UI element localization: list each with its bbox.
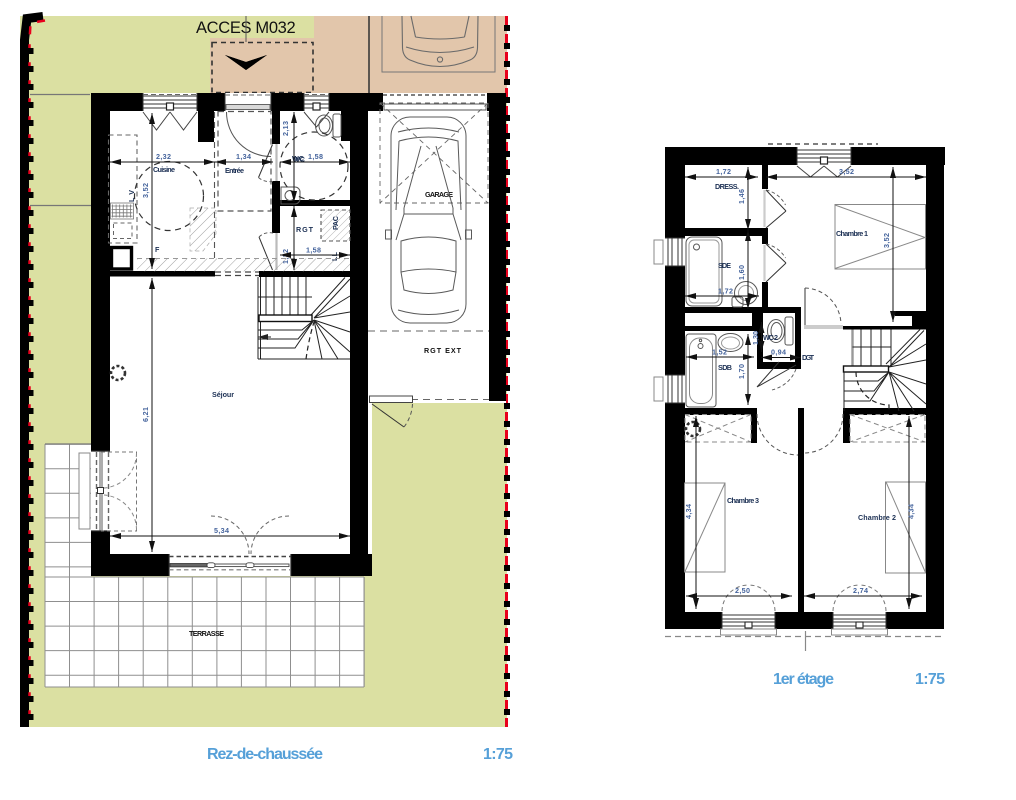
svg-text:RGT: RGT <box>296 225 314 234</box>
svg-text:Rez-de-chaussée: Rez-de-chaussée <box>207 746 323 763</box>
svg-text:1,60: 1,60 <box>737 265 746 280</box>
svg-text:0,94: 0,94 <box>771 348 786 357</box>
svg-text:WC 2: WC 2 <box>763 333 778 342</box>
svg-text:RGT EXT: RGT EXT <box>424 346 462 355</box>
svg-text:4,34: 4,34 <box>684 504 693 519</box>
svg-text:1,58: 1,58 <box>308 152 323 161</box>
svg-text:1,32: 1,32 <box>281 249 290 264</box>
svg-text:3,52: 3,52 <box>141 183 150 198</box>
svg-text:4,34: 4,34 <box>907 504 916 519</box>
svg-text:2,13: 2,13 <box>281 121 290 136</box>
svg-text:DGT: DGT <box>802 353 815 362</box>
svg-text:5,34: 5,34 <box>214 526 229 535</box>
svg-text:1,70: 1,70 <box>737 364 746 379</box>
svg-text:1:75: 1:75 <box>483 746 513 763</box>
svg-text:1,58: 1,58 <box>306 246 321 255</box>
svg-text:SDE: SDE <box>718 261 731 270</box>
svg-text:SDB: SDB <box>718 363 732 372</box>
svg-text:PAC: PAC <box>331 216 340 230</box>
svg-text:3,52: 3,52 <box>839 167 854 176</box>
svg-text:1,52: 1,52 <box>712 348 727 357</box>
svg-text:TERRASSE: TERRASSE <box>189 629 224 638</box>
svg-text:2,50: 2,50 <box>735 586 750 595</box>
svg-text:Séjour: Séjour <box>212 390 234 399</box>
svg-text:6,21: 6,21 <box>141 407 150 422</box>
svg-text:DRESS.: DRESS. <box>715 182 739 191</box>
svg-text:Chambre 2: Chambre 2 <box>858 513 896 522</box>
svg-text:1,34: 1,34 <box>236 152 251 161</box>
svg-text:1,72: 1,72 <box>718 287 733 296</box>
svg-text:Cuisine: Cuisine <box>153 165 175 174</box>
svg-text:3,52: 3,52 <box>882 233 891 248</box>
svg-text:2,74: 2,74 <box>853 586 868 595</box>
svg-text:F: F <box>155 245 160 254</box>
svg-text:Chambre 1: Chambre 1 <box>836 229 868 238</box>
svg-text:Chambre 3: Chambre 3 <box>727 496 759 505</box>
svg-text:2,32: 2,32 <box>156 152 171 161</box>
svg-text:1er étage: 1er étage <box>773 671 834 688</box>
svg-text:Entrée: Entrée <box>225 166 244 175</box>
svg-text:1:75: 1:75 <box>915 671 945 688</box>
svg-text:1,46: 1,46 <box>737 189 746 204</box>
svg-text:1,72: 1,72 <box>716 167 731 176</box>
svg-text:1,30: 1,30 <box>751 331 760 345</box>
